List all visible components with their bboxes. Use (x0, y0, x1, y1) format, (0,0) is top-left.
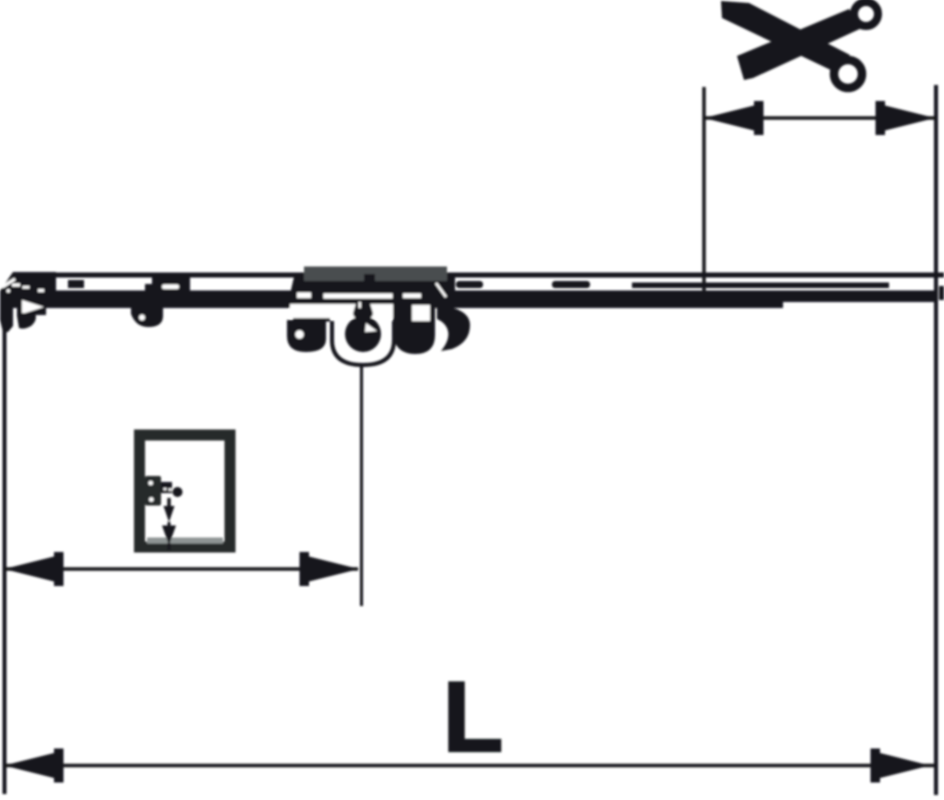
svg-text:L: L (443, 661, 503, 772)
